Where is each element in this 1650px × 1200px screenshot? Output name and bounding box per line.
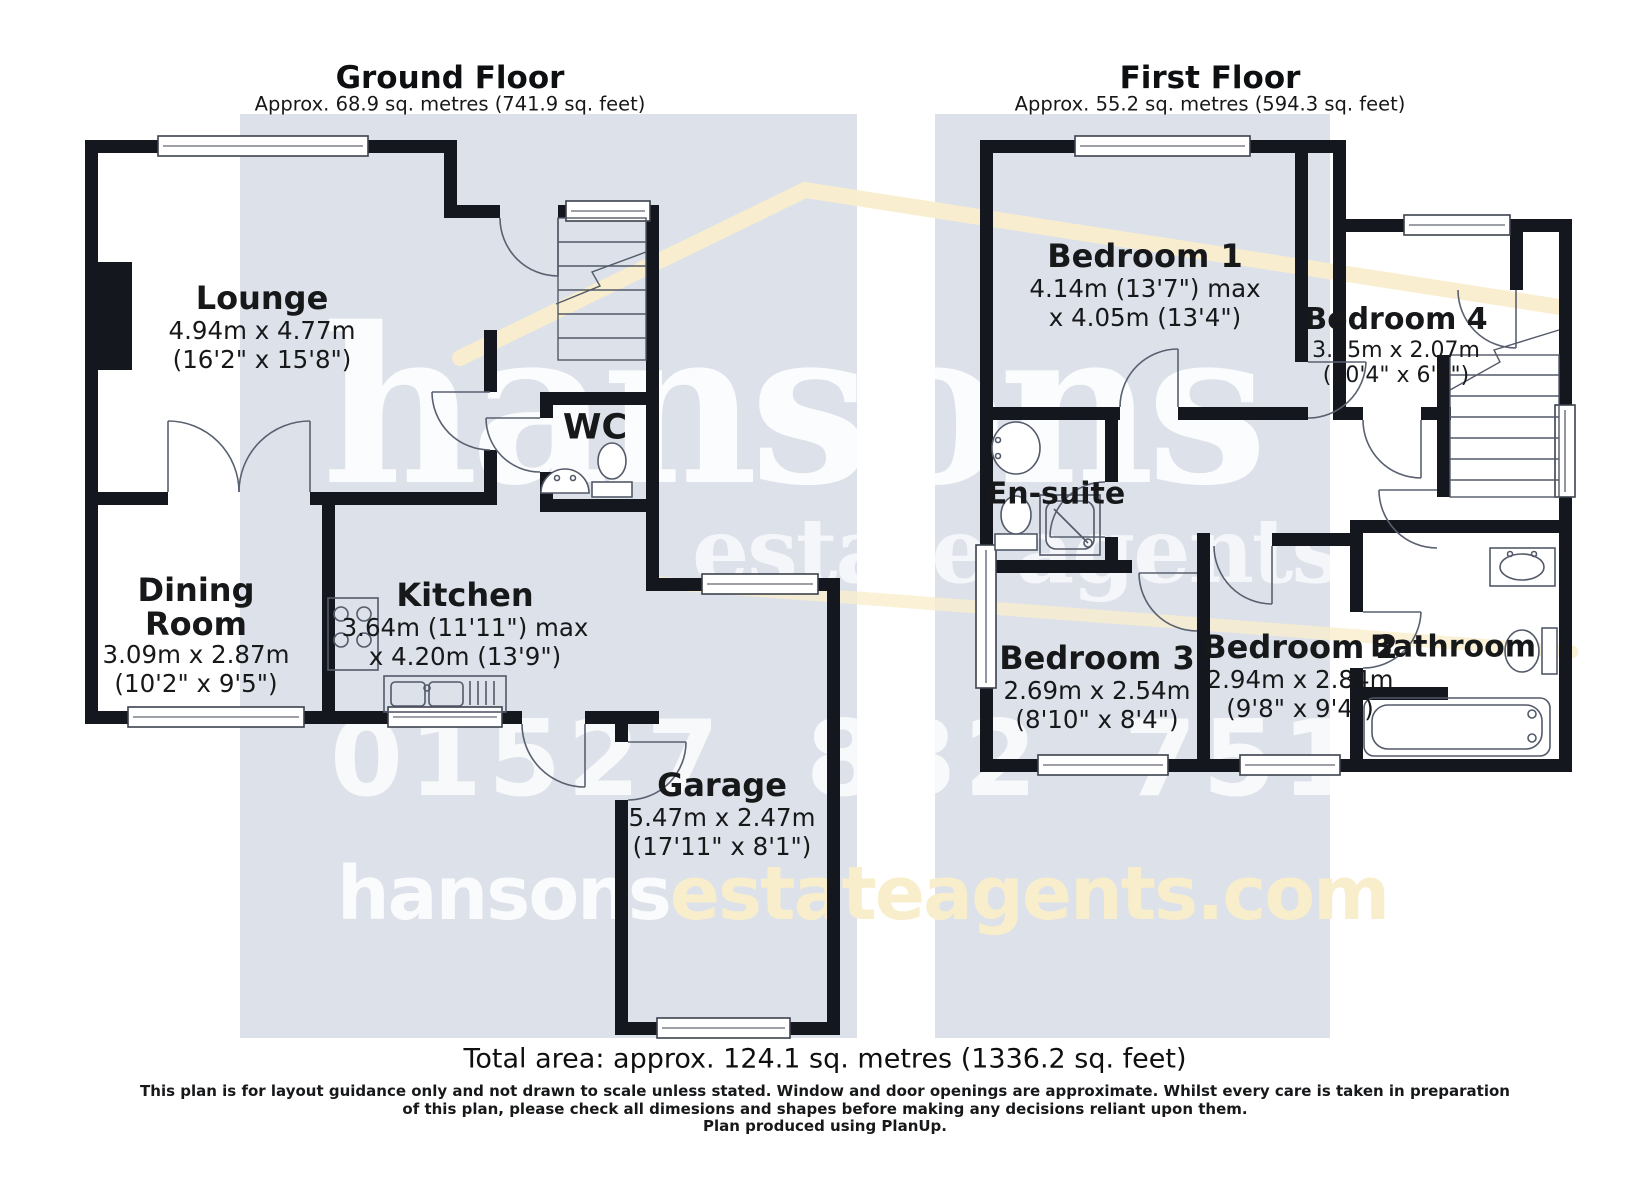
room-dims-imperial: (17'11" x 8'1") (629, 833, 816, 861)
room-name: Garage (629, 767, 816, 804)
ground-floor-title: Ground Floor (336, 60, 565, 96)
first-floor-title: First Floor (1120, 60, 1301, 96)
floorplan-page: hansons estate agents 01527 832 751 hans… (0, 0, 1650, 1200)
bedroom2-door-arc (1214, 546, 1272, 604)
room-name: Lounge (169, 280, 356, 317)
window (128, 707, 304, 727)
disclaimer-line2: of this plan, please check all dimesions… (402, 1100, 1247, 1118)
room-dims-metric: 3.64m (11'11") max (342, 614, 589, 642)
wc-label: WC (563, 408, 627, 449)
window (1555, 405, 1575, 497)
room-dims-imperial: (9'8" x 9'4") (1202, 695, 1398, 723)
bedroom3-door-arc (1139, 573, 1197, 631)
room-dims-imperial: x 4.05m (13'4") (1029, 304, 1260, 332)
room-name: En-suite (987, 478, 1126, 513)
bedroom1-door-arc (1120, 349, 1178, 407)
window (702, 574, 818, 594)
bathroom-label: Bathroom (1370, 631, 1536, 666)
room-dims-metric: 2.69m x 2.54m (999, 677, 1195, 705)
room-dims-imperial: (10'2" x 9'5") (103, 670, 290, 698)
lounge-double-doors-arc (168, 421, 310, 492)
room-name: Bedroom 1 (1029, 238, 1260, 275)
total-area-text: Total area: approx. 124.1 sq. metres (13… (463, 1044, 1186, 1075)
lounge-door-arc (432, 392, 490, 450)
bedroom1-label: Bedroom 1 4.14m (13'7") max x 4.05m (13'… (1029, 238, 1260, 332)
room-dims-metric: 4.94m x 4.77m (169, 317, 356, 345)
room-dims-metric: 4.14m (13'7") max (1029, 275, 1260, 303)
back-door-arc (522, 724, 585, 787)
room-dims-imperial: x 4.20m (13'9") (342, 643, 589, 671)
wc-fixtures (541, 443, 632, 497)
garage-door (657, 1018, 790, 1038)
disclaimer-line1: This plan is for layout guidance only an… (140, 1082, 1510, 1100)
room-dims-imperial: (10'4" x 6'9") (1304, 363, 1487, 389)
window (976, 545, 996, 688)
sink-fixture (992, 422, 1040, 474)
produced-by-text: Plan produced using PlanUp. (703, 1117, 947, 1135)
kitchen-label: Kitchen 3.64m (11'11") max x 4.20m (13'9… (342, 577, 589, 671)
room-name: Bedroom 4 (1304, 303, 1487, 338)
window (388, 707, 502, 727)
first-floor-area: Approx. 55.2 sq. metres (594.3 sq. feet) (1015, 93, 1406, 116)
dining-room-label: Dining Room 3.09m x 2.87m (10'2" x 9'5") (103, 574, 290, 698)
window (1075, 136, 1250, 156)
bedroom3-label: Bedroom 3 2.69m x 2.54m (8'10" x 8'4") (999, 640, 1195, 734)
room-name: Bathroom (1370, 631, 1536, 666)
room-dims-imperial: (8'10" x 8'4") (999, 706, 1195, 734)
room-name: Dining Room (108, 574, 283, 641)
room-name: WC (563, 408, 627, 449)
room-name: Bedroom 3 (999, 640, 1195, 677)
room-name: Kitchen (342, 577, 589, 614)
bedroom4-label: Bedroom 4 3.15m x 2.07m (10'4" x 6'9") (1304, 303, 1487, 389)
window (158, 136, 368, 156)
room-dims-imperial: (16'2" x 15'8") (169, 346, 356, 374)
stairs (556, 218, 646, 360)
room-name: Bedroom 2 (1202, 629, 1398, 666)
sink-fixture (1490, 548, 1555, 586)
garage-label: Garage 5.47m x 2.47m (17'11" x 8'1") (629, 767, 816, 861)
room-dims-metric: 3.09m x 2.87m (103, 641, 290, 669)
bedroom2-label: Bedroom 2 2.94m x 2.84m (9'8" x 9'4") (1202, 629, 1398, 723)
room-dims-metric: 2.94m x 2.84m (1202, 666, 1398, 694)
room-dims-metric: 3.15m x 2.07m (1304, 338, 1487, 364)
ground-floor-area: Approx. 68.9 sq. metres (741.9 sq. feet) (255, 93, 646, 116)
window (1240, 755, 1340, 775)
room-dims-metric: 5.47m x 2.47m (629, 804, 816, 832)
front-door-arc (500, 218, 558, 276)
toilet-fixture (592, 443, 632, 497)
bedroom4-door-arc (1363, 420, 1421, 478)
lounge-label: Lounge 4.94m x 4.77m (16'2" x 15'8") (169, 280, 356, 374)
ensuite-label: En-suite (987, 478, 1126, 513)
window (1038, 755, 1168, 775)
window (1404, 215, 1510, 235)
landing-door-arc (1379, 490, 1437, 548)
